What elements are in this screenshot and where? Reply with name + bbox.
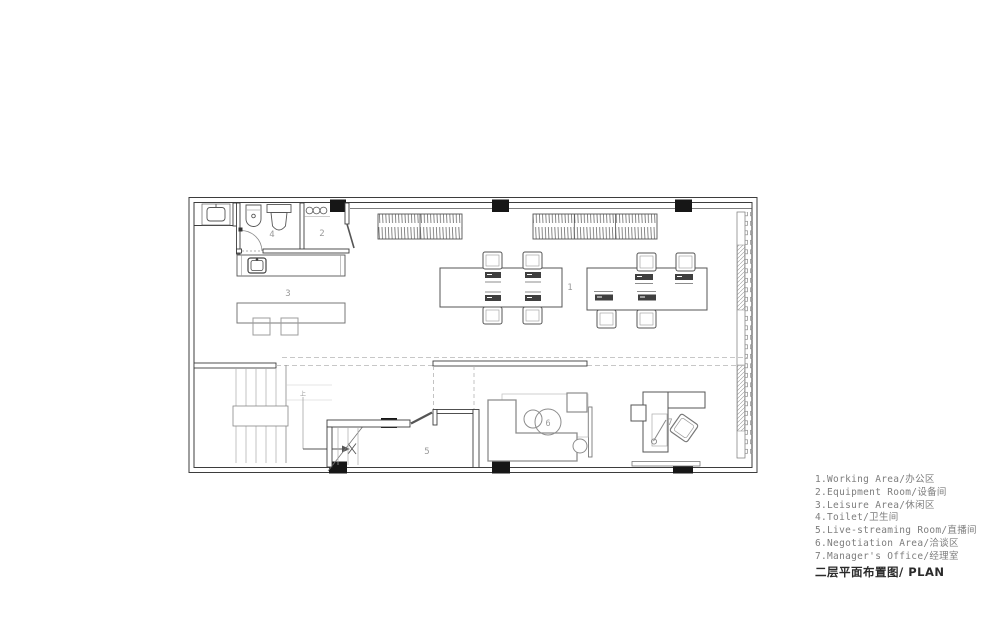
room-label-3: 3 — [285, 289, 290, 299]
column — [492, 462, 510, 474]
toilet-door — [239, 228, 263, 252]
column — [492, 200, 509, 213]
wall-cabinets — [378, 214, 657, 239]
stair-up-label: 上 — [300, 390, 306, 398]
legend: 1.Working Area/办公区 2.Equipment Room/设备间 … — [815, 474, 977, 564]
legend-item-working-area: 1.Working Area/办公区 — [815, 474, 977, 487]
working-area — [440, 252, 707, 328]
side-cabinet — [631, 405, 646, 421]
leisure-furniture — [237, 303, 345, 335]
room-label-6: 6 — [545, 419, 550, 429]
toilet-equipment-walls — [194, 203, 349, 254]
chair — [637, 310, 656, 328]
negotiation-area — [488, 393, 588, 461]
manager-office — [631, 392, 705, 466]
column — [675, 200, 692, 213]
stair-landing — [233, 406, 288, 426]
room-label-5: 5 — [424, 447, 429, 457]
door-leaf — [411, 413, 432, 424]
drawing-sheet: 上 — [0, 0, 1000, 617]
staircase: 上 — [233, 365, 364, 471]
legend-item-equipment-room: 2.Equipment Room/设备间 — [815, 487, 977, 500]
chair — [483, 307, 502, 324]
chair — [637, 253, 656, 271]
l-sofa — [488, 400, 577, 461]
blind-hatch — [737, 245, 744, 310]
chair — [597, 310, 616, 328]
legend-item-negotiation: 6.Negotiation Area/洽谈区 — [815, 538, 977, 551]
room-label-2: 2 — [319, 229, 324, 239]
armchair — [567, 393, 587, 412]
chair — [523, 307, 542, 324]
blind-hatch — [737, 365, 744, 431]
right-curtain-wall — [737, 212, 752, 458]
column — [330, 200, 346, 213]
chair — [676, 253, 695, 271]
ottoman — [573, 439, 587, 453]
tea-counter — [237, 255, 345, 276]
wash-basin — [246, 205, 261, 227]
door-leaf — [347, 224, 354, 248]
low-cabinet — [632, 462, 700, 467]
chair — [523, 252, 542, 269]
room-label-4: 4 — [269, 230, 274, 240]
chair — [483, 252, 502, 269]
toilet-bowl — [267, 205, 291, 231]
legend-item-manager-office: 7.Manager's Office/经理室 — [815, 551, 977, 564]
room-label-1: 1 — [567, 283, 572, 293]
toilet-fixtures — [202, 204, 291, 251]
plan-title: 二层平面布置图/ PLAN — [815, 564, 944, 580]
corner-sink — [202, 204, 230, 225]
legend-item-toilet: 4.Toilet/卫生间 — [815, 512, 977, 525]
room-label-7: 7 — [667, 418, 672, 428]
legend-item-live-streaming: 5.Live-streaming Room/直播间 — [815, 525, 977, 538]
legend-item-leisure-area: 3.Leisure Area/休闲区 — [815, 500, 977, 513]
swivel-chair — [669, 413, 698, 442]
mullion-strip — [745, 212, 752, 458]
